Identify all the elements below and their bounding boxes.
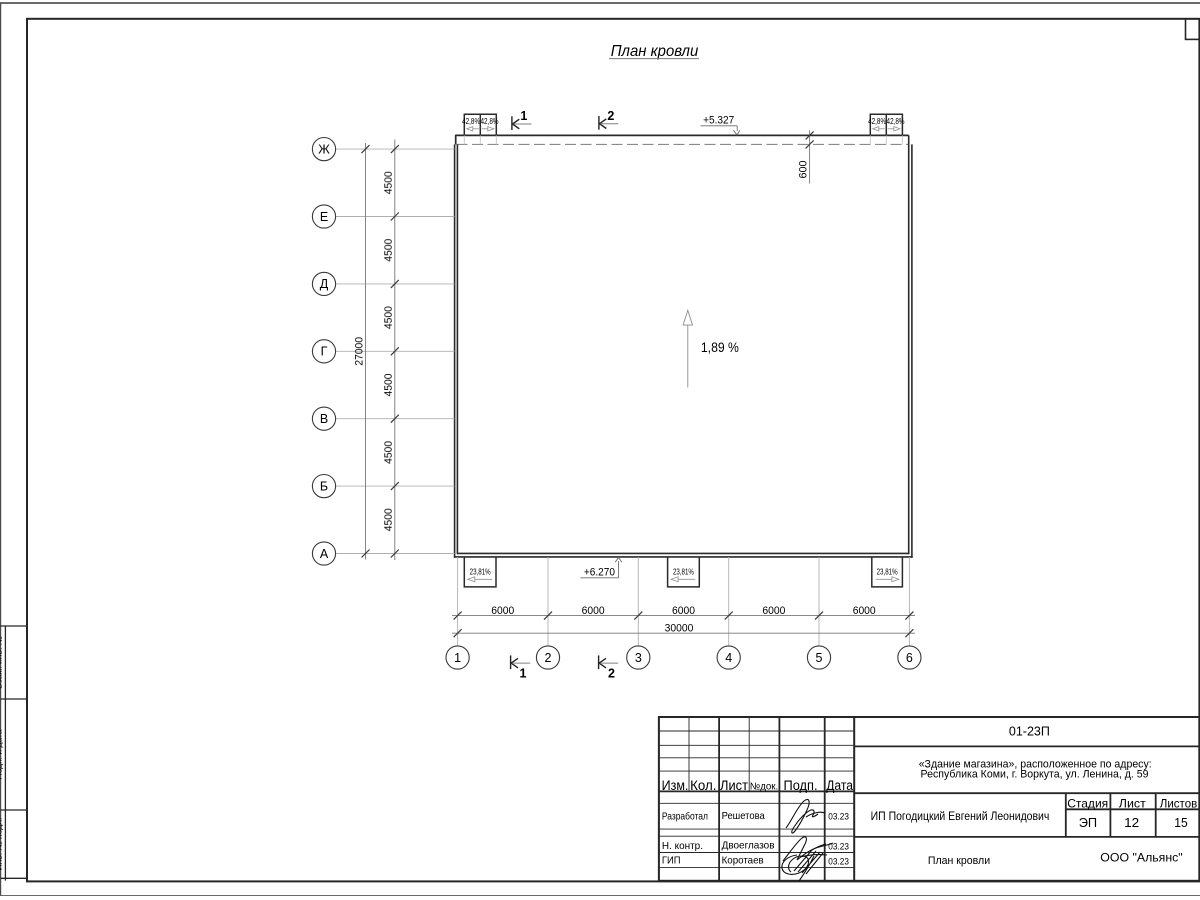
svg-text:№док.: №док. [750, 782, 778, 793]
svg-text:03.23: 03.23 [828, 856, 849, 867]
svg-text:Стадия: Стадия [1067, 796, 1108, 810]
svg-text:01-23П: 01-23П [1009, 724, 1050, 739]
svg-text:4500: 4500 [383, 306, 395, 329]
svg-text:В: В [320, 412, 328, 426]
svg-text:Е: Е [320, 210, 328, 224]
svg-text:1: 1 [520, 667, 527, 681]
svg-text:12: 12 [1124, 815, 1139, 830]
svg-text:1,89 %: 1,89 % [701, 340, 739, 355]
svg-text:4500: 4500 [383, 508, 395, 531]
svg-text:Б: Б [320, 479, 328, 493]
svg-text:42,8%: 42,8% [887, 116, 905, 126]
svg-text:1: 1 [454, 651, 461, 665]
svg-text:План кровли: План кровли [611, 43, 699, 60]
svg-text:23,81%: 23,81% [877, 567, 898, 577]
svg-text:План кровли: План кровли [928, 855, 990, 867]
svg-text:Листов: Листов [1160, 796, 1198, 810]
svg-text:4500: 4500 [383, 171, 395, 194]
svg-text:ЭП: ЭП [1079, 815, 1097, 830]
svg-text:15: 15 [1174, 815, 1188, 830]
svg-text:Г: Г [321, 345, 328, 359]
svg-text:Д: Д [320, 277, 329, 291]
svg-text:ГИП: ГИП [662, 856, 681, 867]
svg-text:Кол.: Кол. [690, 778, 716, 793]
svg-text:1: 1 [520, 109, 527, 123]
svg-text:5: 5 [816, 651, 823, 665]
svg-text:ИП Погодицкий Евгений Леонидов: ИП Погодицкий Евгений Леонидович [871, 811, 1050, 823]
svg-text:4: 4 [725, 651, 732, 665]
svg-text:Подп. и дата: Подп. и дата [0, 729, 4, 779]
svg-text:6000: 6000 [672, 605, 695, 617]
svg-text:23,81%: 23,81% [470, 567, 491, 577]
svg-text:6000: 6000 [762, 605, 785, 617]
svg-text:30000: 30000 [665, 622, 694, 634]
svg-text:3: 3 [635, 651, 642, 665]
svg-text:4500: 4500 [383, 441, 395, 464]
svg-text:Республика Коми, г. Воркута, у: Республика Коми, г. Воркута, ул. Ленина,… [921, 768, 1149, 780]
svg-text:А: А [320, 547, 329, 561]
svg-text:27000: 27000 [354, 337, 366, 366]
svg-text:600: 600 [798, 161, 810, 179]
svg-text:Подп.: Подп. [784, 778, 818, 793]
svg-text:Н. контр.: Н. контр. [662, 841, 703, 852]
svg-text:Инв. № подл.: Инв. № подл. [0, 818, 4, 871]
svg-text:ООО "Альянс": ООО "Альянс" [1100, 851, 1182, 865]
svg-text:Ж: Ж [318, 142, 330, 156]
svg-text:2: 2 [608, 667, 615, 681]
svg-text:Разработал: Разработал [662, 810, 708, 822]
svg-text:4500: 4500 [383, 374, 395, 397]
svg-text:Решетова: Решетова [722, 811, 765, 822]
svg-text:6000: 6000 [582, 605, 605, 617]
svg-text:Лист: Лист [720, 778, 748, 793]
svg-text:Лист: Лист [1119, 796, 1147, 810]
svg-text:2: 2 [607, 109, 614, 123]
svg-text:6: 6 [906, 651, 913, 665]
svg-text:+5.327: +5.327 [703, 115, 734, 127]
svg-text:Изм.: Изм. [662, 778, 689, 793]
svg-text:Взам. инв. №: Взам. инв. № [0, 636, 4, 689]
svg-text:42,8%: 42,8% [868, 116, 886, 126]
svg-text:03.23: 03.23 [828, 811, 849, 822]
svg-text:42,8%: 42,8% [481, 116, 499, 126]
svg-text:6000: 6000 [491, 605, 514, 617]
svg-text:Двоеглазов: Двоеглазов [722, 841, 775, 852]
svg-text:+6.270: +6.270 [584, 567, 615, 579]
svg-text:2: 2 [545, 651, 552, 665]
svg-text:Дата: Дата [826, 778, 853, 793]
svg-text:Коротаев: Коротаев [722, 855, 764, 866]
svg-text:4500: 4500 [383, 239, 395, 262]
svg-text:6000: 6000 [853, 605, 876, 617]
svg-text:42,8%: 42,8% [462, 116, 480, 126]
svg-text:23,81%: 23,81% [673, 567, 694, 577]
